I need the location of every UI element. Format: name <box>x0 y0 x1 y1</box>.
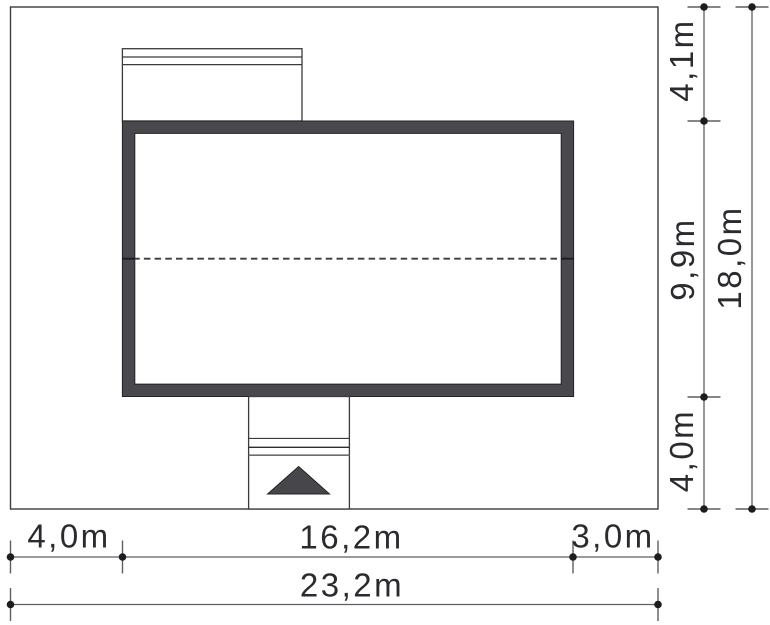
svg-text:9,9m: 9,9m <box>664 217 701 300</box>
svg-text:4,0m: 4,0m <box>27 518 110 555</box>
svg-text:3,0m: 3,0m <box>571 518 654 555</box>
svg-text:18,0m: 18,0m <box>711 205 748 309</box>
svg-text:23,2m: 23,2m <box>300 567 404 604</box>
svg-text:16,2m: 16,2m <box>299 519 403 556</box>
svg-text:4,1m: 4,1m <box>663 18 700 101</box>
svg-text:4,0m: 4,0m <box>663 409 700 492</box>
